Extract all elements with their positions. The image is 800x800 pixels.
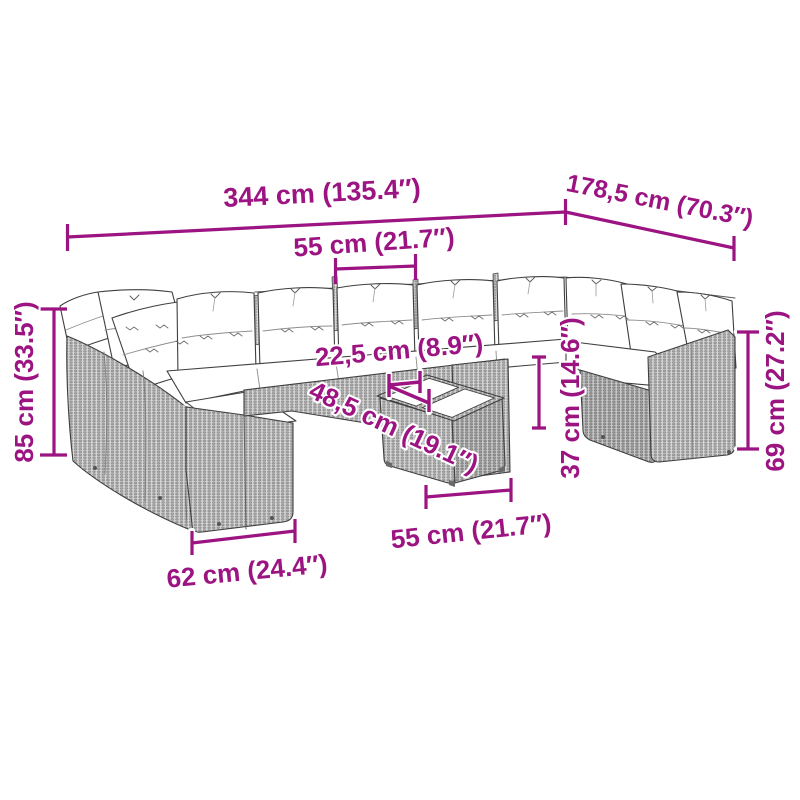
svg-text:85 cm (33.5″): 85 cm (33.5″) — [9, 301, 39, 462]
svg-text:344 cm (135.4″): 344 cm (135.4″) — [223, 173, 422, 213]
svg-text:37 cm (14.6″): 37 cm (14.6″) — [555, 317, 585, 478]
svg-text:178,5 cm (70.3″): 178,5 cm (70.3″) — [564, 169, 756, 233]
svg-text:69 cm (27.2″): 69 cm (27.2″) — [760, 310, 790, 471]
svg-text:55 cm (21.7″): 55 cm (21.7″) — [389, 508, 553, 555]
svg-text:55 cm (21.7″): 55 cm (21.7″) — [292, 221, 455, 262]
